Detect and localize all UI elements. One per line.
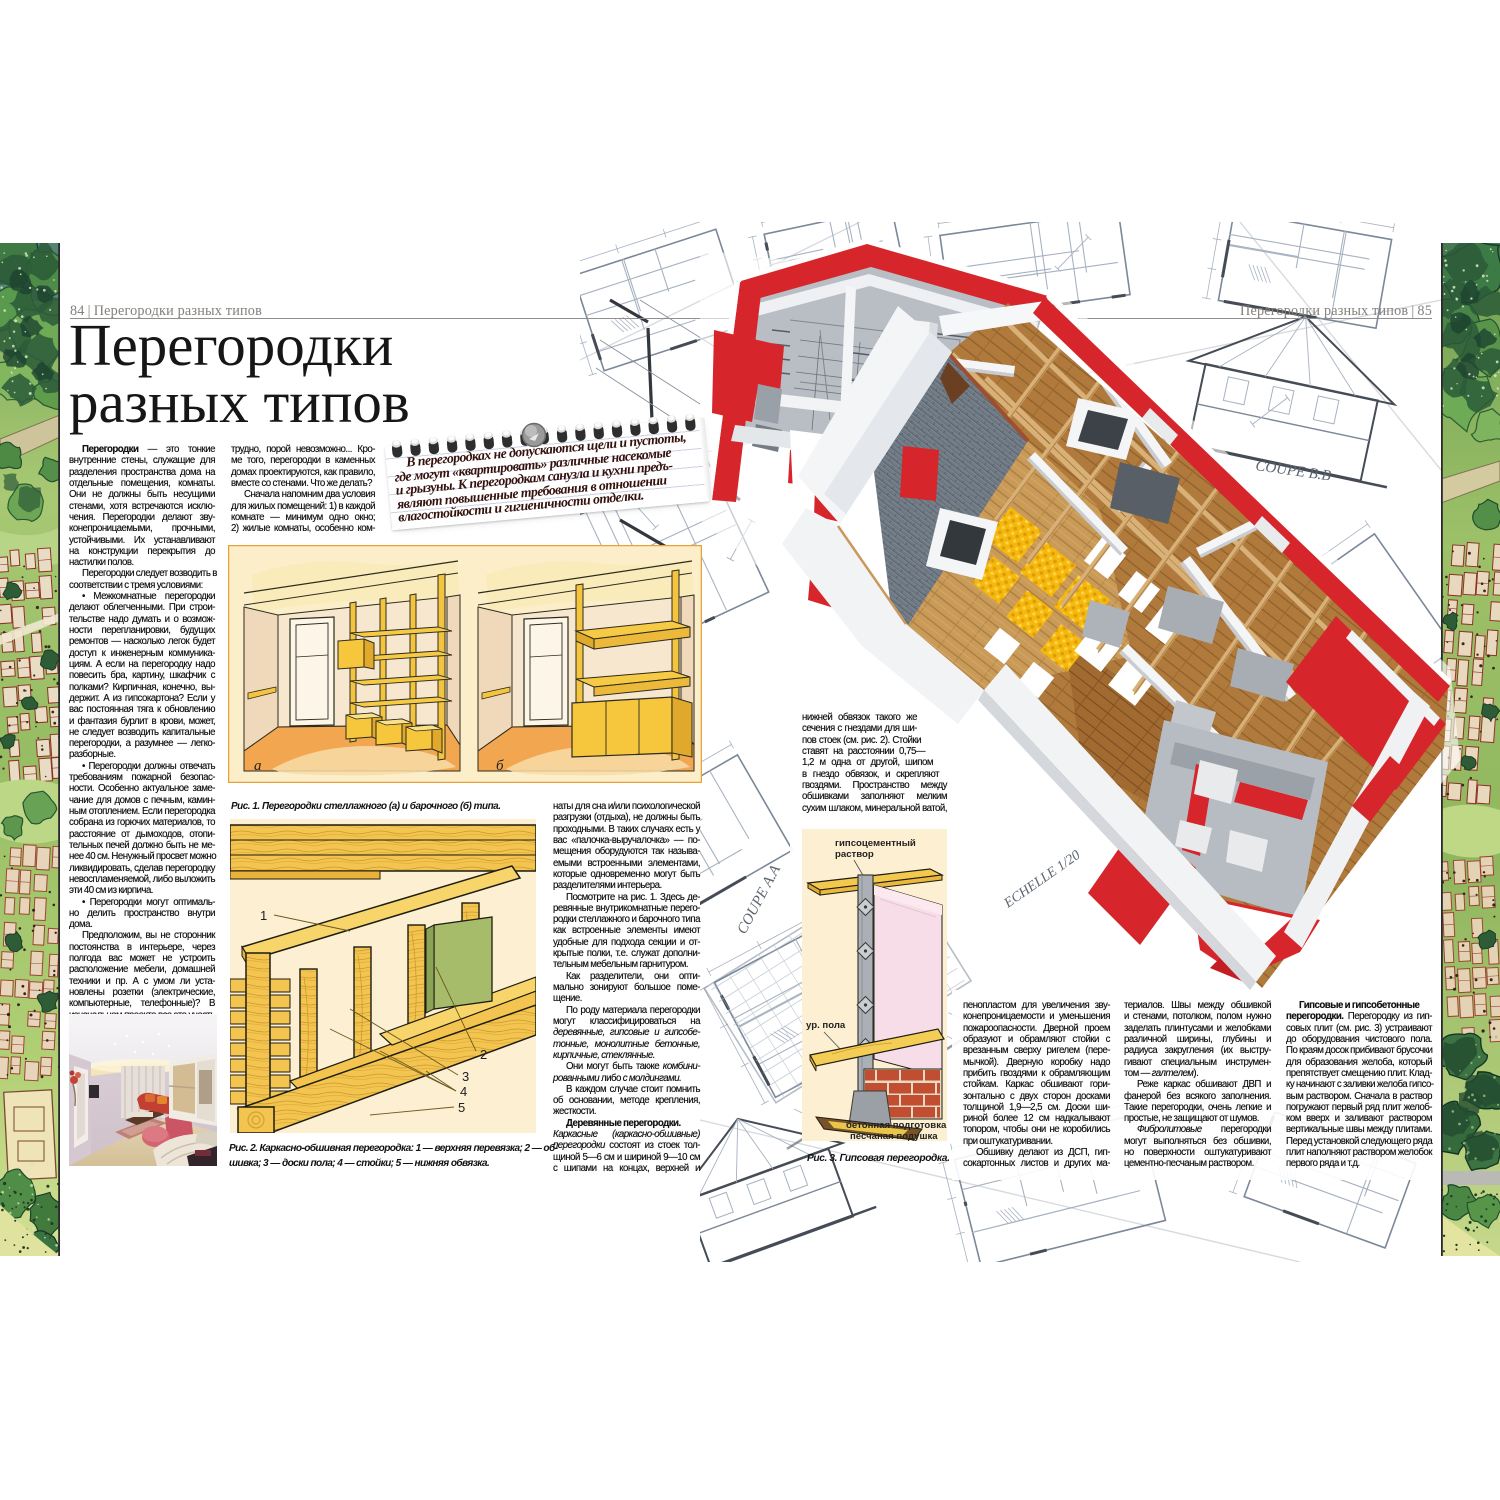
svg-text:а: а	[254, 758, 262, 774]
svg-text:бетонная подготовка: бетонная подготовка	[846, 1120, 947, 1131]
svg-text:3: 3	[462, 1069, 469, 1084]
svg-text:2: 2	[480, 1047, 487, 1062]
svg-text:гипсоцементный: гипсоцементный	[835, 838, 916, 849]
svg-text:ур. пола: ур. пола	[806, 1020, 846, 1031]
svg-text:4: 4	[460, 1084, 467, 1099]
svg-text:б: б	[496, 758, 504, 774]
svg-text:5: 5	[458, 1100, 465, 1115]
svg-text:песчаная подушка: песчаная подушка	[850, 1131, 938, 1141]
svg-text:1: 1	[260, 908, 267, 923]
svg-text:раствор: раствор	[835, 849, 874, 860]
